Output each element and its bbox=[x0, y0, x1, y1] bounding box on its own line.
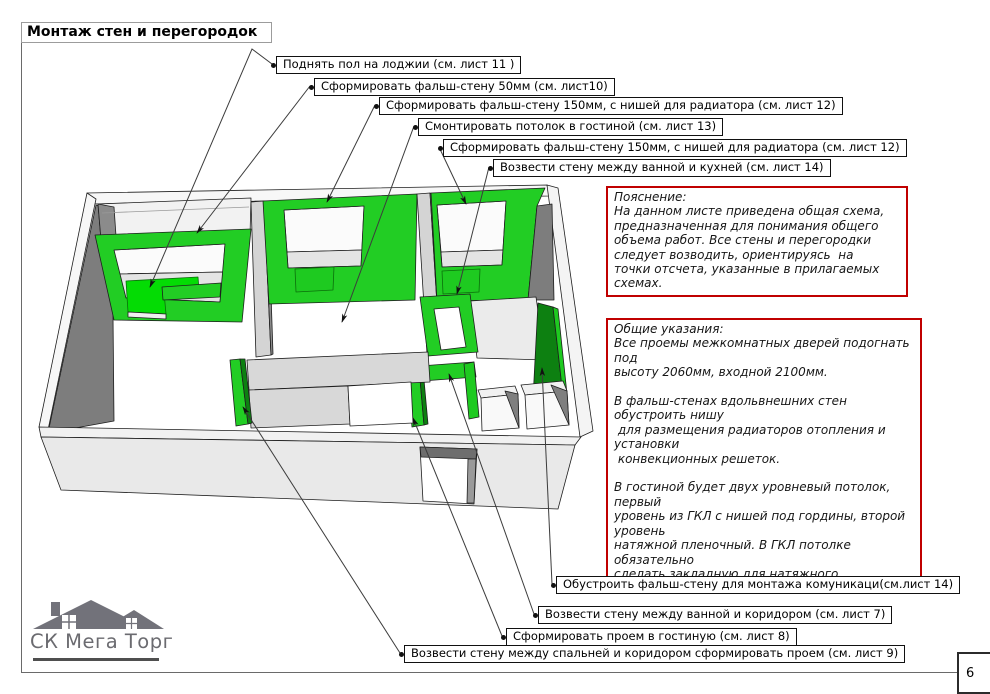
note-general-title: Общие указания: bbox=[614, 322, 914, 336]
callout-wall-bath-corridor: Возвести стену между ванной и коридором … bbox=[538, 606, 892, 624]
callout-label: Сформировать фальш-стену 150мм, с нишей … bbox=[450, 140, 900, 154]
callout-label: Возвести стену между спальней и коридоро… bbox=[411, 646, 898, 660]
callout-ceiling-living-room: Смонтировать потолок в гостиной (см. лис… bbox=[418, 118, 723, 136]
note-explanation-body: На данном листе приведена общая схема, п… bbox=[614, 204, 900, 290]
callout-false-wall-150mm-kitchen: Сформировать фальш-стену 150мм, с нишей … bbox=[443, 139, 907, 157]
note-explanation-title: Пояснение: bbox=[614, 190, 900, 204]
callout-label: Сформировать проем в гостиную (см. лист … bbox=[513, 629, 790, 643]
callout-label: Сформировать фальш-стену 50мм (см. лист1… bbox=[321, 79, 608, 93]
logo-roofs-icon bbox=[33, 600, 164, 629]
callout-label: Возвести стену между ванной и кухней (см… bbox=[500, 160, 824, 174]
callout-opening-living-room: Сформировать проем в гостиную (см. лист … bbox=[506, 628, 797, 646]
callout-label: Смонтировать потолок в гостиной (см. лис… bbox=[425, 119, 716, 133]
callout-false-wall-communications: Обустроить фальш-стену для монтажа комун… bbox=[556, 576, 960, 594]
callout-wall-bedroom-corridor: Возвести стену между спальней и коридоро… bbox=[404, 645, 905, 663]
callout-wall-bath-kitchen: Возвести стену между ванной и кухней (см… bbox=[493, 159, 831, 177]
callout-raise-loggia-floor: Поднять пол на лоджии (см. лист 11 ) bbox=[276, 56, 521, 74]
sheet-number: 6 bbox=[966, 666, 974, 681]
sheet-number-box: 6 bbox=[957, 652, 990, 694]
callout-false-wall-50mm: Сформировать фальш-стену 50мм (см. лист1… bbox=[314, 78, 615, 96]
note-explanation: Пояснение: На данном листе приведена общ… bbox=[606, 186, 908, 297]
apartment-3d-model bbox=[39, 185, 593, 509]
company-logo-text: СК Мега Торг bbox=[30, 630, 173, 653]
callout-false-wall-150mm-living: Сформировать фальш-стену 150мм, с нишей … bbox=[379, 97, 843, 115]
note-general-body: Все проемы межкомнатных дверей подогнать… bbox=[614, 336, 914, 581]
callout-label: Возвести стену между ванной и коридором … bbox=[545, 607, 885, 621]
callout-label: Поднять пол на лоджии (см. лист 11 ) bbox=[283, 57, 514, 71]
sheet-title: Монтаж стен и перегородок bbox=[21, 22, 272, 43]
callout-label: Сформировать фальш-стену 150мм, с нишей … bbox=[386, 98, 836, 112]
callout-label: Обустроить фальш-стену для монтажа комун… bbox=[563, 577, 953, 591]
note-general-instructions: Общие указания: Все проемы межкомнатных … bbox=[606, 318, 922, 587]
logo-underline bbox=[33, 658, 159, 661]
